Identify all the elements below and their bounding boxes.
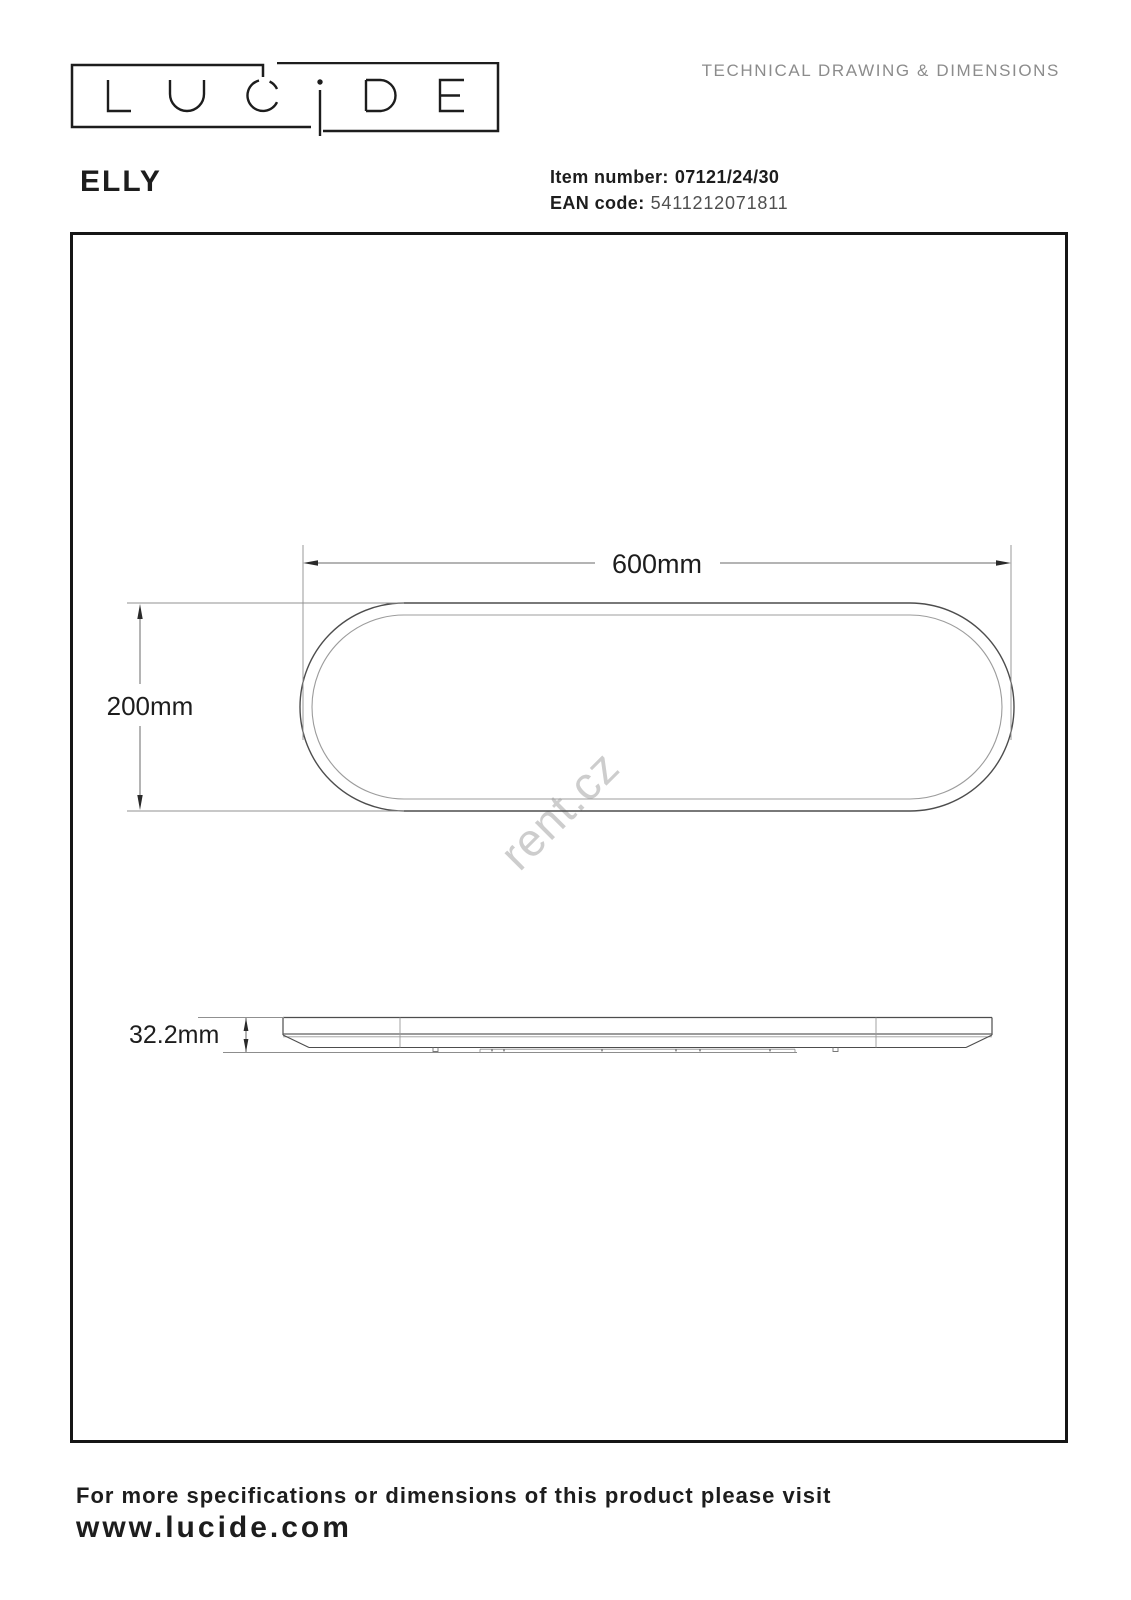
item-number-label: Item number: bbox=[550, 167, 669, 187]
logo-letter-e bbox=[440, 80, 464, 111]
logo-frame-right bbox=[277, 63, 498, 131]
lucide-logo bbox=[70, 62, 500, 138]
ean-code-label: EAN code: bbox=[550, 193, 645, 213]
width-dimension-label: 600mm bbox=[597, 549, 717, 580]
logo-letter-u bbox=[170, 80, 204, 111]
logo-letter-c bbox=[247, 81, 277, 111]
footer-website: www.lucide.com bbox=[76, 1511, 352, 1545]
logo-letter-i-dot bbox=[317, 79, 322, 84]
height-dimension-label: 200mm bbox=[90, 691, 210, 722]
logo-letter-d bbox=[366, 80, 395, 111]
document-title: TECHNICAL DRAWING & DIMENSIONS bbox=[702, 61, 1060, 81]
technical-drawing-page: TECHNICAL DRAWING & DIMENSIONS ELLY Item… bbox=[0, 0, 1131, 1600]
logo-letter-l bbox=[108, 80, 131, 111]
ean-code-value: 5411212071811 bbox=[651, 193, 789, 213]
item-number-line: Item number:07121/24/30 bbox=[550, 167, 779, 188]
product-name: ELLY bbox=[80, 165, 162, 199]
thickness-dimension-label: 32.2mm bbox=[129, 1021, 259, 1050]
ean-code-line: EAN code:5411212071811 bbox=[550, 193, 789, 214]
item-number-value: 07121/24/30 bbox=[675, 167, 780, 187]
footer-note: For more specifications or dimensions of… bbox=[76, 1483, 831, 1509]
